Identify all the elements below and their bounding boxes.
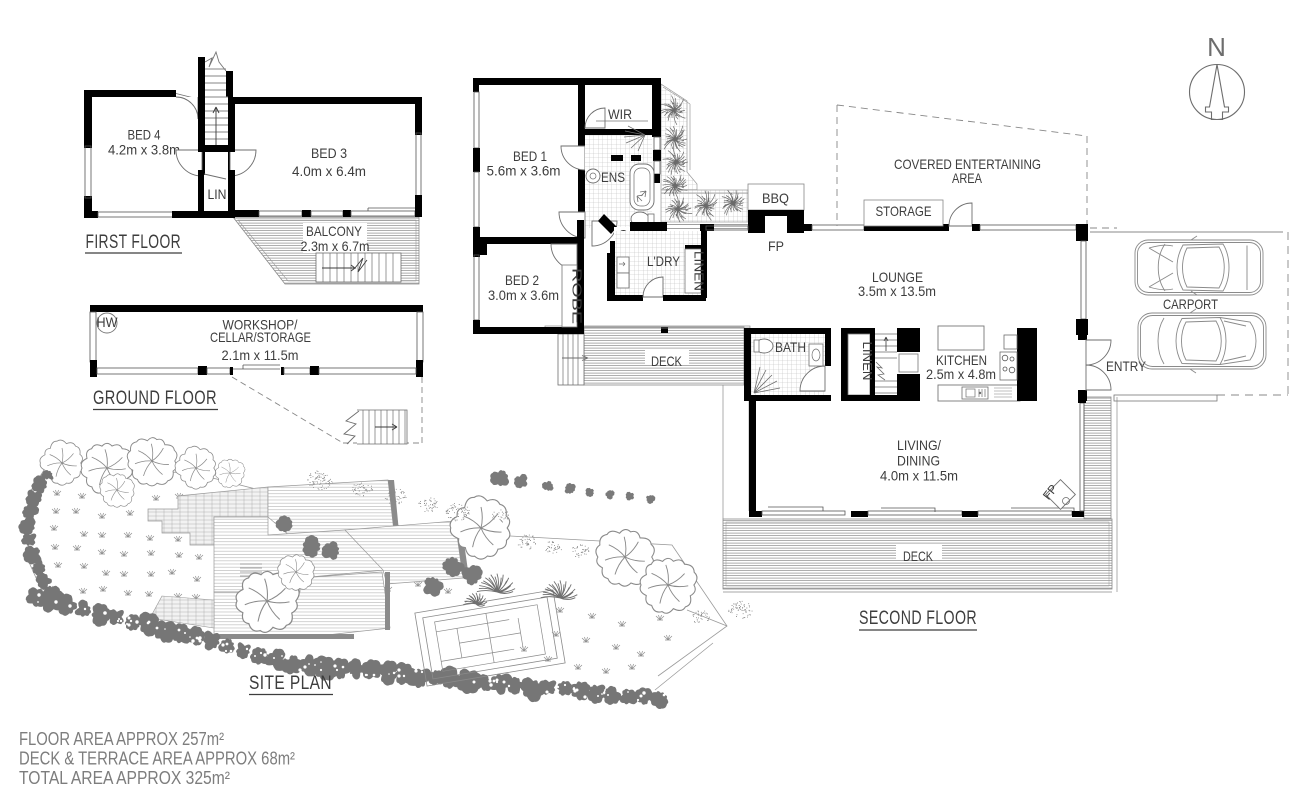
svg-text:4.0m x 11.5m: 4.0m x 11.5m <box>880 468 958 484</box>
svg-text:BED 4: BED 4 <box>128 127 161 143</box>
svg-text:LINEN: LINEN <box>860 342 874 381</box>
svg-text:BALCONY: BALCONY <box>306 223 363 239</box>
svg-text:FLOOR AREA APPROX 257m²: FLOOR AREA APPROX 257m² <box>19 729 224 749</box>
svg-text:3.5m x 13.5m: 3.5m x 13.5m <box>858 283 936 299</box>
svg-text:BBQ: BBQ <box>762 190 789 206</box>
svg-text:AREA: AREA <box>952 170 983 186</box>
svg-text:HW: HW <box>97 315 118 330</box>
svg-text:2.1m x 11.5m: 2.1m x 11.5m <box>222 347 299 363</box>
svg-text:DECK: DECK <box>651 353 683 369</box>
svg-text:N: N <box>1207 32 1226 62</box>
svg-text:CELLAR/STORAGE: CELLAR/STORAGE <box>210 329 311 345</box>
svg-text:2.3m x 6.7m: 2.3m x 6.7m <box>301 238 370 254</box>
svg-text:BED 2: BED 2 <box>505 272 539 288</box>
svg-text:L'DRY: L'DRY <box>647 253 681 269</box>
svg-text:CARPORT: CARPORT <box>1163 296 1218 312</box>
svg-text:BED 3: BED 3 <box>311 145 347 161</box>
svg-text:DECK: DECK <box>903 548 934 564</box>
svg-text:ROBE: ROBE <box>570 268 585 324</box>
svg-text:WIR: WIR <box>608 106 632 122</box>
svg-text:ENS: ENS <box>601 169 625 185</box>
svg-text:SITE PLAN: SITE PLAN <box>249 673 332 694</box>
svg-text:LIN: LIN <box>208 187 227 202</box>
svg-text:4.0m x 6.4m: 4.0m x 6.4m <box>292 163 366 179</box>
svg-text:2.5m x 4.8m: 2.5m x 4.8m <box>926 366 996 382</box>
svg-text:BATH: BATH <box>775 339 806 355</box>
svg-text:STORAGE: STORAGE <box>876 203 932 219</box>
svg-text:DECK & TERRACE AREA APPROX 68m: DECK & TERRACE AREA APPROX 68m² <box>19 749 295 769</box>
svg-text:FP: FP <box>768 239 784 254</box>
svg-text:SECOND FLOOR: SECOND FLOOR <box>859 608 977 629</box>
svg-text:FIRST FLOOR: FIRST FLOOR <box>86 232 182 253</box>
svg-text:TOTAL AREA APPROX 325m²: TOTAL AREA APPROX 325m² <box>19 768 230 788</box>
svg-text:5.6m x 3.6m: 5.6m x 3.6m <box>487 163 561 179</box>
svg-text:4.2m x 3.8m: 4.2m x 3.8m <box>108 142 180 158</box>
svg-text:DINING: DINING <box>897 453 940 469</box>
svg-text:3.0m x 3.6m: 3.0m x 3.6m <box>488 287 559 303</box>
svg-text:ENTRY: ENTRY <box>1106 358 1147 374</box>
svg-text:LIVING/: LIVING/ <box>897 437 941 453</box>
svg-text:LINEN: LINEN <box>692 251 706 291</box>
svg-text:GROUND FLOOR: GROUND FLOOR <box>93 388 217 409</box>
